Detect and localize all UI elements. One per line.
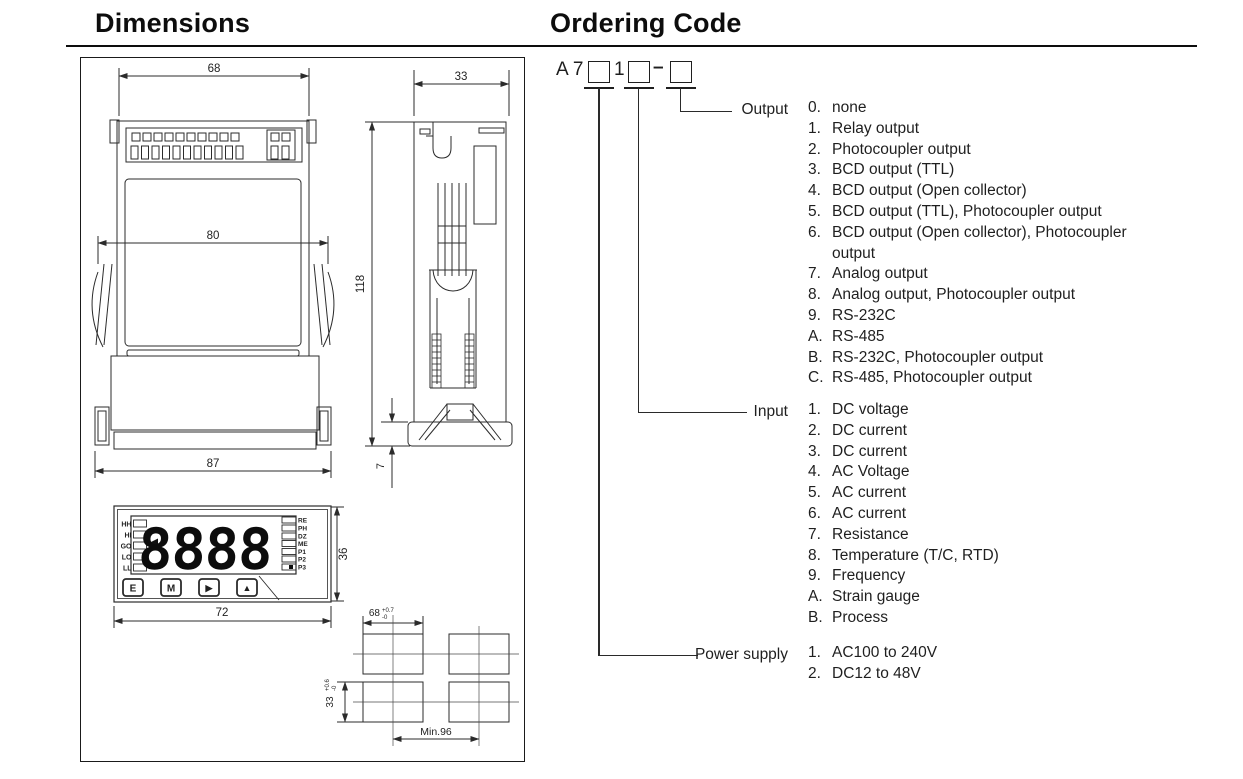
option-text: RS-485, Photocoupler output xyxy=(832,368,1127,389)
option-key: 1. xyxy=(808,119,832,140)
option-key: 8. xyxy=(808,546,832,567)
option-text: Process xyxy=(832,608,999,629)
option-key: 2. xyxy=(808,140,832,161)
option-text: BCD output (Open collector), Photocouple… xyxy=(832,223,1127,265)
option-key: 4. xyxy=(808,462,832,483)
code-underline-input xyxy=(624,87,654,89)
code-box-power xyxy=(588,61,610,83)
option-text: BCD output (Open collector) xyxy=(832,181,1127,202)
option-key: 2. xyxy=(808,664,832,685)
svg-text:ME: ME xyxy=(298,541,308,548)
svg-text:RE: RE xyxy=(298,518,308,525)
option-text: Temperature (T/C, RTD) xyxy=(832,546,999,567)
option-key: 8. xyxy=(808,285,832,306)
option-text: BCD output (TTL), Photocoupler output xyxy=(832,202,1127,223)
dim-rear-width-mid: 80 xyxy=(207,230,220,242)
dimensions-title: Dimensions xyxy=(95,8,250,39)
clip-ratchets xyxy=(432,334,474,388)
dim-cutout-height-tol-upper: +0.6 xyxy=(325,678,331,691)
dim-side-height: 118 xyxy=(355,275,367,293)
option-key: 7. xyxy=(808,264,832,285)
input-option-row: A. Strain gauge xyxy=(808,587,999,608)
input-group-label: Input xyxy=(688,403,788,421)
dim-side-width: 33 xyxy=(455,71,468,83)
output-option-row: 8. Analog output, Photocoupler output xyxy=(808,285,1127,306)
power-option-row: 1. AC100 to 240V xyxy=(808,643,937,664)
option-text: RS-232C, Photocoupler output xyxy=(832,348,1127,369)
rear-view xyxy=(92,68,334,478)
option-key: 7. xyxy=(808,525,832,546)
svg-text:P2: P2 xyxy=(298,557,306,564)
code-box-input xyxy=(628,61,650,83)
option-key: B. xyxy=(808,348,832,369)
option-key: C. xyxy=(808,368,832,389)
dimensions-panel: 68 80 87 xyxy=(80,57,525,762)
up-arrow-icon: ▲ xyxy=(243,583,252,593)
input-option-row: 3. DC current xyxy=(808,442,999,463)
dimension-drawing: 68 80 87 xyxy=(81,58,524,761)
input-option-row: 7. Resistance xyxy=(808,525,999,546)
power-supply-group-label: Power supply xyxy=(640,646,788,664)
option-text: Analog output xyxy=(832,264,1127,285)
mode-button-label: M xyxy=(167,584,175,595)
input-option-row: B. Process xyxy=(808,608,999,629)
svg-text:P3: P3 xyxy=(298,565,306,572)
code-dash: – xyxy=(653,57,664,79)
dim-cutout-height-tol-lower: -0 xyxy=(332,685,338,691)
option-text: Analog output, Photocoupler output xyxy=(832,285,1127,306)
option-key: 3. xyxy=(808,160,832,181)
option-key: 0. xyxy=(808,98,832,119)
output-option-row: 3. BCD output (TTL) xyxy=(808,160,1127,181)
dim-front-width: 72 xyxy=(216,607,229,619)
option-key: 1. xyxy=(808,643,832,664)
code-underline-output xyxy=(666,87,696,89)
option-text: Resistance xyxy=(832,525,999,546)
option-text: DC current xyxy=(832,421,999,442)
option-text: RS-485 xyxy=(832,327,1127,348)
connector-output-v xyxy=(680,88,682,111)
connector-power-v xyxy=(598,88,600,655)
dim-cutout-width-tol-upper: +0.7 xyxy=(382,608,395,614)
svg-text:LL: LL xyxy=(123,566,132,573)
input-option-row: 9. Frequency xyxy=(808,566,999,587)
option-text: none xyxy=(832,98,1127,119)
enter-button-label: E xyxy=(130,584,137,595)
output-option-row: 6. BCD output (Open collector), Photocou… xyxy=(808,223,1127,265)
svg-text:DZ: DZ xyxy=(298,534,307,541)
option-text: Frequency xyxy=(832,566,999,587)
connector-input-v xyxy=(638,88,640,412)
button-glyphs: E M ▶ ▲ xyxy=(130,583,252,595)
dim-cutout-width: 68 xyxy=(369,608,381,619)
input-option-row: 2. DC current xyxy=(808,421,999,442)
option-text: AC Voltage xyxy=(832,462,999,483)
option-text: Strain gauge xyxy=(832,587,999,608)
cutout-height-label: 33 +0.6 -0 xyxy=(325,678,338,707)
option-key: 1. xyxy=(808,400,832,421)
svg-text:PH: PH xyxy=(298,526,307,533)
svg-text:P1: P1 xyxy=(298,549,306,556)
option-key: 3. xyxy=(808,442,832,463)
mounting-clips xyxy=(92,264,334,347)
input-option-row: 1. DC voltage xyxy=(808,400,999,421)
option-text: Relay output xyxy=(832,119,1127,140)
option-key: A. xyxy=(808,587,832,608)
option-key: 5. xyxy=(808,483,832,504)
option-text: DC current xyxy=(832,442,999,463)
option-text: AC100 to 240V xyxy=(832,643,937,664)
dim-front-height: 36 xyxy=(338,548,350,561)
output-group-label: Output xyxy=(688,101,788,119)
side-view xyxy=(365,70,512,488)
svg-text:LO: LO xyxy=(122,555,132,562)
option-text: AC current xyxy=(832,483,999,504)
option-text: DC12 to 48V xyxy=(832,664,937,685)
option-key: 4. xyxy=(808,181,832,202)
dim-cutout-height: 33 xyxy=(325,696,336,708)
option-text: RS-232C xyxy=(832,306,1127,327)
code-mid: 1 xyxy=(614,59,625,81)
option-key: 2. xyxy=(808,421,832,442)
output-options-list: 0. none 1. Relay output 2. Photocoupler … xyxy=(808,98,1127,389)
right-indicator-boxes xyxy=(282,517,296,570)
output-option-row: A. RS-485 xyxy=(808,327,1127,348)
dim-side-flange: 7 xyxy=(375,463,387,469)
dim-cutout-width-tol-lower: -0 xyxy=(382,615,388,621)
input-option-row: 5. AC current xyxy=(808,483,999,504)
option-text: DC voltage xyxy=(832,400,999,421)
option-key: B. xyxy=(808,608,832,629)
code-prefix: A 7 xyxy=(556,59,583,81)
power-supply-options-list: 1. AC100 to 240V 2. DC12 to 48V xyxy=(808,643,937,685)
heading-divider xyxy=(66,45,1197,47)
output-option-row: 4. BCD output (Open collector) xyxy=(808,181,1127,202)
input-option-row: 8. Temperature (T/C, RTD) xyxy=(808,546,999,567)
option-text: Photocoupler output xyxy=(832,140,1127,161)
output-option-row: 2. Photocoupler output xyxy=(808,140,1127,161)
input-options-list: 1. DC voltage 2. DC current 3. DC curren… xyxy=(808,400,999,629)
option-text: AC current xyxy=(832,504,999,525)
datasheet-page: Dimensions Ordering Code xyxy=(0,0,1243,779)
option-key: 9. xyxy=(808,566,832,587)
option-key: 5. xyxy=(808,202,832,223)
seven-segment-display: 8888 xyxy=(137,517,273,583)
terminal-blocks xyxy=(131,133,290,159)
output-option-row: 1. Relay output xyxy=(808,119,1127,140)
svg-text:HH: HH xyxy=(121,522,131,529)
option-key: 6. xyxy=(808,504,832,525)
option-key: A. xyxy=(808,327,832,348)
output-option-row: 7. Analog output xyxy=(808,264,1127,285)
ordering-code-title: Ordering Code xyxy=(550,8,742,39)
option-text: BCD output (TTL) xyxy=(832,160,1127,181)
output-option-row: B. RS-232C, Photocoupler output xyxy=(808,348,1127,369)
dim-cutout-min-spacing: Min.96 xyxy=(420,726,452,738)
output-option-row: 9. RS-232C xyxy=(808,306,1127,327)
right-indicator-labels: RE PH DZ ME P1 P2 P3 xyxy=(298,518,308,572)
dim-rear-width-top: 68 xyxy=(208,63,221,75)
svg-text:GO: GO xyxy=(121,544,132,551)
output-option-row: C. RS-485, Photocoupler output xyxy=(808,368,1127,389)
input-option-row: 6. AC current xyxy=(808,504,999,525)
input-option-row: 4. AC Voltage xyxy=(808,462,999,483)
svg-text:HI: HI xyxy=(125,533,132,540)
right-arrow-icon: ▶ xyxy=(205,583,214,593)
power-option-row: 2. DC12 to 48V xyxy=(808,664,937,685)
dim-rear-width-bottom: 87 xyxy=(207,458,220,470)
code-box-output xyxy=(670,61,692,83)
output-option-row: 0. none xyxy=(808,98,1127,119)
option-key: 9. xyxy=(808,306,832,327)
option-key: 6. xyxy=(808,223,832,265)
output-option-row: 5. BCD output (TTL), Photocoupler output xyxy=(808,202,1127,223)
